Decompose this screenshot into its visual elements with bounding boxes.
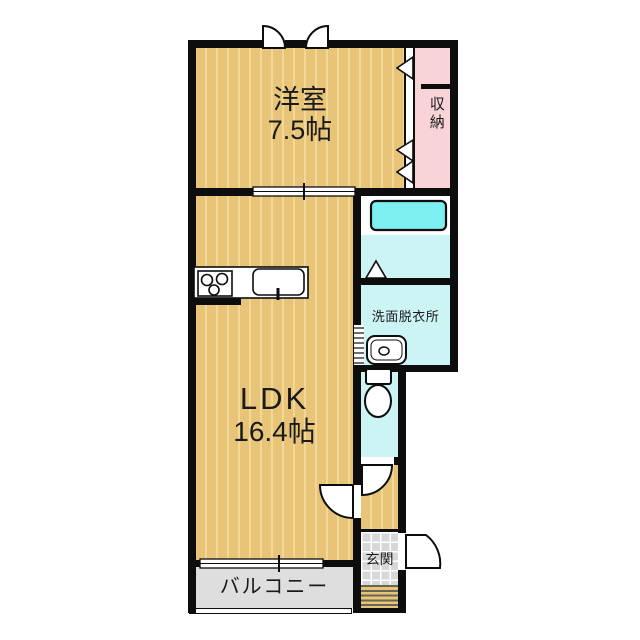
outswing-door-icon <box>263 26 285 48</box>
balcony-label: バルコニー <box>196 577 353 598</box>
door-opening <box>361 457 394 465</box>
door-opening <box>398 533 406 570</box>
ldk-area: 16.4帖 <box>196 417 353 446</box>
folding-door-icon <box>397 57 413 79</box>
outswing-door-icon <box>306 26 328 48</box>
washroom-label: 洗面脱衣所 <box>361 310 450 324</box>
floor-plan: 洋室 7.5帖 収納 LDK 16.4帖 洗面脱衣所 玄関 バルコニー <box>0 0 640 640</box>
folding-door-icon <box>397 161 413 183</box>
toilet-icon <box>365 369 391 417</box>
accordion-door-icon <box>354 325 364 365</box>
door-swing-icon <box>320 485 353 518</box>
kitchen-counter <box>194 267 308 300</box>
washbasin-icon <box>367 336 406 364</box>
entrance-label: 玄関 <box>361 552 398 567</box>
closet-label: 収納 <box>428 96 444 132</box>
bath-door-icon <box>366 261 386 278</box>
entry-door-icon <box>406 535 440 568</box>
door-swing-icon <box>362 465 392 495</box>
bathtub-icon <box>371 201 446 230</box>
door-opening <box>353 485 361 518</box>
western-room-label: 洋室 <box>196 86 404 114</box>
sliding-window-icon <box>200 555 323 572</box>
sliding-door-icon <box>253 183 355 200</box>
western-room-area: 7.5帖 <box>196 116 404 144</box>
ldk-label: LDK <box>196 383 353 416</box>
